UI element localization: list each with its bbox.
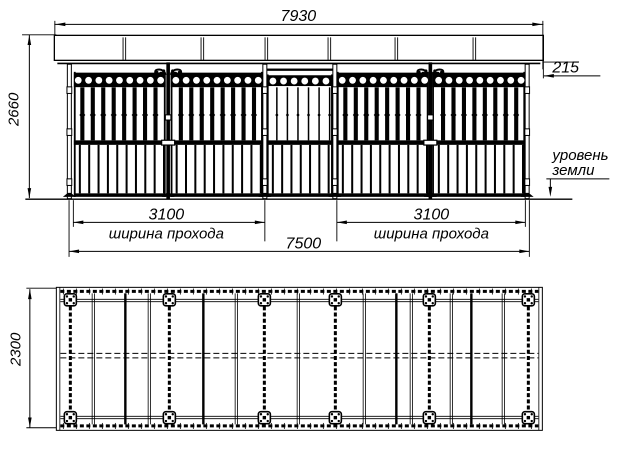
- svg-text:ширина прохода: ширина прохода: [374, 225, 489, 242]
- svg-text:7930: 7930: [281, 8, 317, 25]
- svg-text:2300: 2300: [7, 332, 24, 367]
- svg-text:ширина прохода: ширина прохода: [109, 225, 224, 242]
- svg-text:215: 215: [551, 59, 579, 76]
- svg-text:2660: 2660: [5, 92, 22, 127]
- svg-text:земли: земли: [551, 162, 595, 179]
- svg-text:7500: 7500: [286, 235, 322, 252]
- svg-text:3100: 3100: [149, 206, 185, 223]
- svg-text:3100: 3100: [414, 206, 450, 223]
